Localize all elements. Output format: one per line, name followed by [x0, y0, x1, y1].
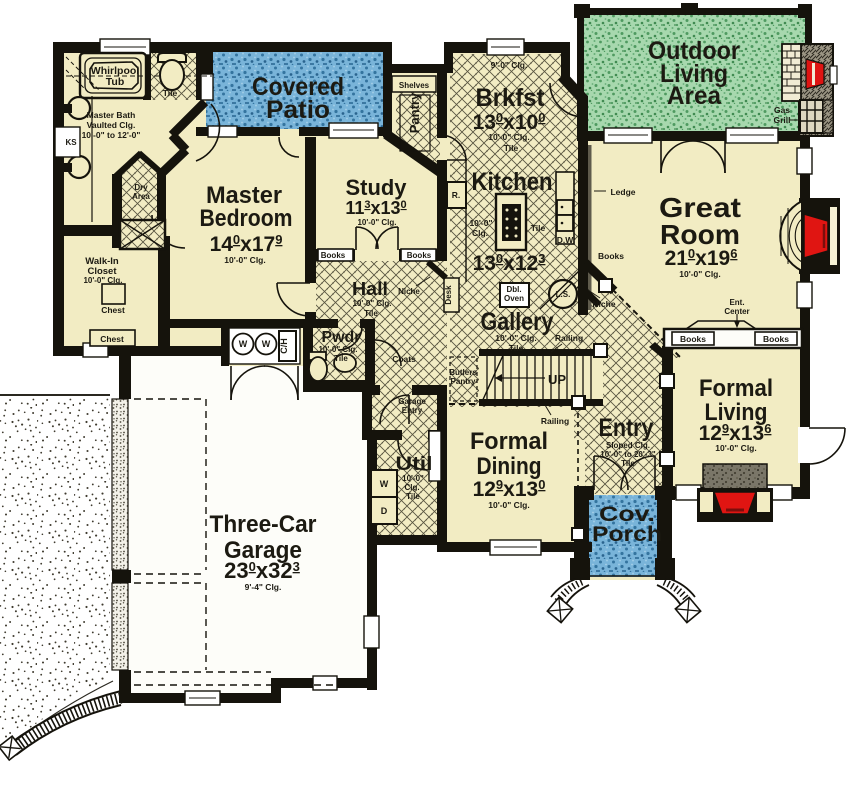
svg-text:Railing: Railing — [541, 416, 569, 426]
svg-text:10'-0" Clg.: 10'-0" Clg. — [83, 276, 122, 285]
svg-text:Dry: Dry — [134, 183, 148, 192]
svg-text:Dining: Dining — [477, 453, 542, 480]
svg-text:L.S.: L.S. — [556, 290, 571, 299]
svg-text:Pantry: Pantry — [451, 377, 476, 386]
svg-text:W: W — [239, 339, 248, 349]
svg-text:Hall: Hall — [352, 279, 388, 299]
svg-text:Ledge: Ledge — [610, 187, 635, 197]
svg-text:Area: Area — [667, 82, 722, 110]
svg-text:Brkfst: Brkfst — [476, 84, 546, 112]
svg-text:140x179: 140x179 — [210, 232, 283, 256]
svg-text:W: W — [380, 479, 389, 489]
svg-text:Bedroom: Bedroom — [200, 205, 293, 232]
svg-text:130x123: 130x123 — [473, 251, 546, 275]
svg-text:Pwdr: Pwdr — [322, 329, 361, 346]
svg-text:113x130: 113x130 — [345, 198, 406, 218]
svg-text:10'-0" Clg.: 10'-0" Clg. — [224, 255, 265, 265]
svg-text:230x323: 230x323 — [224, 558, 300, 583]
svg-text:Gas: Gas — [774, 105, 790, 115]
svg-text:Room: Room — [660, 219, 740, 250]
svg-text:10'-0" Clg.: 10'-0" Clg. — [352, 299, 391, 308]
svg-text:Pantry: Pantry — [407, 92, 422, 133]
svg-text:Tile: Tile — [334, 354, 348, 363]
svg-text:10'-0" Clg.: 10'-0" Clg. — [357, 218, 396, 227]
svg-text:Niche: Niche — [398, 287, 420, 296]
svg-text:Butlers: Butlers — [449, 368, 477, 377]
svg-text:Master Bath: Master Bath — [87, 110, 136, 120]
svg-text:10'-0" to 12'-0": 10'-0" to 12'-0" — [82, 130, 141, 140]
svg-text:Chest: Chest — [101, 305, 125, 315]
svg-text:9'-4" Clg.: 9'-4" Clg. — [245, 582, 282, 592]
svg-text:130x100: 130x100 — [473, 110, 546, 134]
svg-text:Sloped Clg.: Sloped Clg. — [606, 441, 650, 450]
svg-text:10'-0" Clg.: 10'-0" Clg. — [488, 500, 529, 510]
svg-text:Tub: Tub — [106, 76, 124, 88]
svg-text:10'-0" Clg.: 10'-0" Clg. — [488, 132, 529, 142]
svg-text:Area: Area — [132, 192, 150, 201]
svg-text:R.: R. — [452, 190, 461, 200]
svg-text:10'-0" Clg.: 10'-0" Clg. — [318, 345, 357, 354]
svg-text:Oven: Oven — [504, 294, 524, 303]
svg-text:Dbl.: Dbl. — [506, 285, 521, 294]
svg-text:Grill: Grill — [773, 115, 790, 125]
svg-text:Books: Books — [763, 334, 789, 344]
svg-text:Study: Study — [346, 175, 408, 200]
svg-text:Formal: Formal — [699, 375, 773, 402]
svg-text:129x136: 129x136 — [699, 421, 772, 445]
svg-text:Garage: Garage — [398, 397, 426, 406]
svg-text:Kitchen: Kitchen — [472, 168, 553, 196]
svg-text:UP: UP — [548, 372, 566, 387]
svg-text:Entry: Entry — [599, 414, 654, 442]
svg-text:Books: Books — [407, 251, 432, 260]
svg-text:Clg.: Clg. — [404, 483, 419, 492]
svg-text:Niche: Niche — [592, 299, 615, 309]
svg-text:9'-0" Clg.: 9'-0" Clg. — [491, 60, 528, 70]
svg-text:10'-0" Clg.: 10'-0" Clg. — [679, 269, 720, 279]
svg-text:Tile: Tile — [163, 88, 178, 98]
svg-text:Coats: Coats — [392, 354, 416, 364]
svg-text:129x130: 129x130 — [473, 477, 546, 501]
svg-text:10'-0" to 20'-3": 10'-0" to 20'-3" — [600, 450, 656, 459]
svg-text:Gallery: Gallery — [481, 308, 554, 336]
svg-text:Vaulted Clg.: Vaulted Clg. — [87, 120, 136, 130]
svg-text:Railing: Railing — [555, 333, 583, 343]
svg-text:D: D — [381, 506, 388, 516]
svg-text:10'-0" Clg.: 10'-0" Clg. — [495, 333, 536, 343]
svg-text:Patio: Patio — [266, 96, 330, 124]
svg-text:Tile: Tile — [531, 223, 546, 233]
svg-text:Books: Books — [680, 334, 706, 344]
svg-text:W: W — [262, 339, 271, 349]
svg-text:Books: Books — [321, 251, 346, 260]
svg-text:Books: Books — [598, 251, 624, 261]
svg-text:10'-0" Clg.: 10'-0" Clg. — [715, 443, 756, 453]
svg-text:Tile: Tile — [621, 459, 635, 468]
svg-text:Tile: Tile — [504, 143, 519, 153]
svg-text:Desk: Desk — [444, 285, 453, 305]
svg-text:D.W.: D.W. — [557, 235, 575, 245]
svg-text:Util: Util — [396, 454, 433, 475]
svg-text:Tile: Tile — [406, 492, 420, 501]
svg-text:Tile: Tile — [509, 343, 524, 353]
svg-text:210x196: 210x196 — [665, 246, 738, 270]
svg-text:Tile: Tile — [364, 309, 378, 318]
svg-text:Center: Center — [724, 307, 749, 316]
svg-text:10'-0": 10'-0" — [402, 474, 424, 483]
svg-text:10'-0": 10'-0" — [469, 218, 492, 228]
svg-text:Formal: Formal — [470, 428, 548, 455]
svg-text:KS: KS — [65, 138, 77, 147]
svg-text:Entry: Entry — [402, 406, 423, 415]
svg-text:Shelves: Shelves — [399, 81, 430, 90]
svg-text:Chest: Chest — [100, 334, 124, 344]
svg-text:Ent.: Ent. — [729, 298, 744, 307]
svg-text:Clg.: Clg. — [472, 228, 488, 238]
svg-text:C/H: C/H — [279, 338, 289, 354]
svg-text:Three-Car: Three-Car — [210, 511, 317, 538]
svg-text:Porch: Porch — [592, 523, 662, 546]
